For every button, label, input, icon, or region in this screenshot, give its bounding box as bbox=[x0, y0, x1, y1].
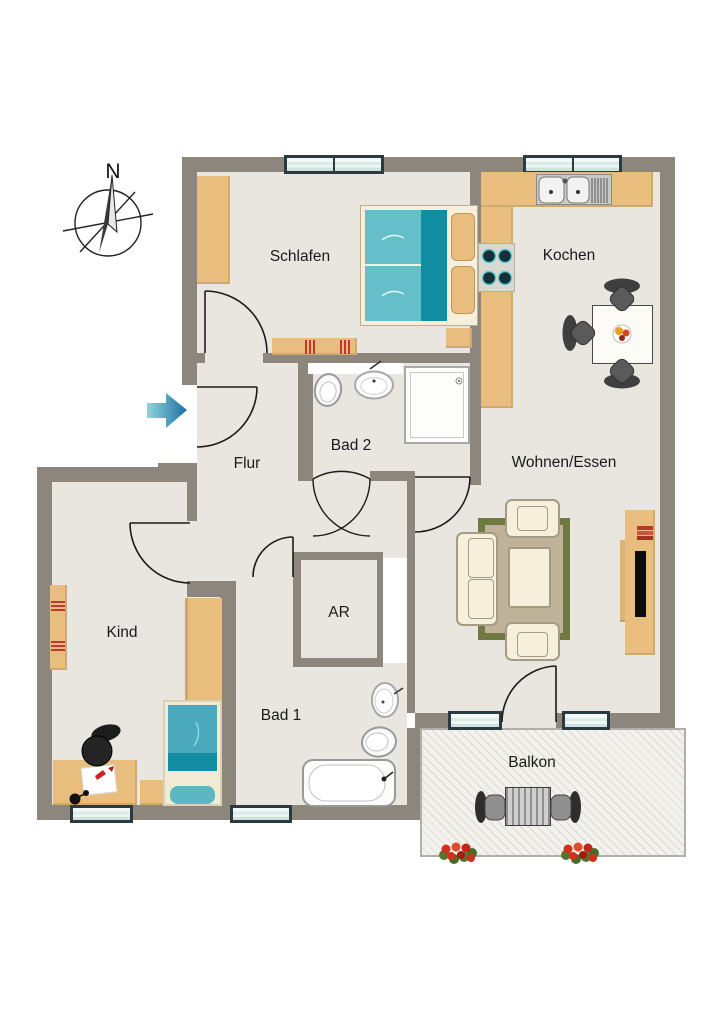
kind-door-opening bbox=[187, 521, 197, 581]
wall-ar-west bbox=[293, 552, 301, 667]
bedside-shelf bbox=[446, 328, 472, 348]
balcony-door-opening bbox=[502, 713, 556, 728]
wall-balcony-west bbox=[407, 728, 420, 815]
shower bbox=[404, 366, 470, 444]
balcony-table bbox=[505, 787, 551, 826]
wall-right bbox=[660, 157, 675, 728]
sofa-cushion bbox=[468, 579, 494, 619]
mattress bbox=[168, 705, 217, 753]
bad2-top-ledge bbox=[308, 363, 403, 374]
window-pane bbox=[334, 157, 382, 172]
sofa-cushion bbox=[468, 538, 494, 578]
compass-rose-icon bbox=[63, 175, 153, 256]
wohnen-door-opening bbox=[415, 471, 470, 481]
window-pane bbox=[450, 713, 500, 728]
bed-blanket bbox=[421, 210, 447, 321]
window-pane bbox=[564, 713, 608, 728]
room-label-ar: AR bbox=[328, 604, 350, 622]
window-wohnen-left bbox=[448, 711, 502, 730]
window-pane bbox=[525, 157, 573, 172]
room-label-flur: Flur bbox=[234, 455, 261, 473]
entrance-arrow-icon bbox=[147, 393, 187, 428]
mattress bbox=[365, 210, 421, 264]
double-bed bbox=[360, 205, 478, 326]
kind-wardrobe bbox=[185, 598, 222, 700]
room-label-kind: Kind bbox=[106, 624, 137, 642]
wall-kind-top bbox=[37, 467, 197, 482]
window-pane bbox=[286, 157, 334, 172]
room-label-schlafen: Schlafen bbox=[270, 248, 330, 266]
entrance-opening bbox=[182, 385, 197, 463]
bookshelf bbox=[50, 585, 67, 670]
stove bbox=[478, 243, 515, 292]
wall-bad2-south bbox=[370, 471, 415, 481]
pillow bbox=[170, 786, 215, 804]
floor-plan: N bbox=[0, 0, 723, 1024]
armchair-seat bbox=[517, 506, 548, 531]
single-bed bbox=[163, 700, 222, 806]
coffee-table bbox=[508, 547, 551, 608]
window-pane bbox=[573, 157, 621, 172]
desk-paper bbox=[81, 764, 118, 795]
wall-bad2-west bbox=[298, 363, 313, 481]
wall-schlafen-bottom-stub bbox=[197, 353, 205, 363]
sofa bbox=[456, 532, 498, 626]
pillow bbox=[451, 213, 475, 261]
window-schlafen bbox=[284, 155, 384, 174]
pillow bbox=[451, 266, 475, 314]
shower-tray bbox=[410, 372, 464, 438]
wardrobe bbox=[197, 176, 230, 284]
room-label-wohnen-essen: Wohnen/Essen bbox=[512, 454, 617, 472]
ar-east-shaft bbox=[383, 558, 407, 663]
bed-blanket bbox=[168, 753, 217, 771]
dining-table bbox=[592, 305, 653, 364]
wall-west-upper bbox=[182, 157, 197, 385]
kitchen-counter-left bbox=[481, 207, 513, 408]
bad2-door-opening bbox=[313, 471, 370, 481]
wall-ar-bottom bbox=[293, 658, 383, 667]
armchair bbox=[505, 499, 560, 538]
window-pane bbox=[232, 807, 290, 821]
window-kind bbox=[70, 805, 133, 823]
mattress bbox=[365, 266, 421, 321]
armchair bbox=[505, 622, 560, 661]
window-wohnen-right bbox=[562, 711, 610, 730]
room-label-bad2: Bad 2 bbox=[331, 437, 372, 455]
armchair-seat bbox=[517, 632, 548, 657]
balcony-floor bbox=[420, 728, 686, 857]
wall-kind-east-stub bbox=[187, 465, 197, 521]
window-pane bbox=[72, 807, 131, 821]
room-label-balkon: Balkon bbox=[508, 754, 555, 772]
compass-north-label: N bbox=[105, 160, 120, 183]
wall-kind-bad1 bbox=[220, 581, 236, 810]
kitchen-sink-unit bbox=[536, 174, 612, 205]
wall-ar-top bbox=[293, 552, 383, 560]
tv-cabinet bbox=[625, 510, 655, 655]
wall-flur-wohnen bbox=[407, 481, 415, 713]
sideboard bbox=[272, 338, 357, 355]
room-label-bad1: Bad 1 bbox=[261, 707, 302, 725]
room-label-kochen: Kochen bbox=[543, 247, 596, 265]
window-bad1 bbox=[230, 805, 292, 823]
